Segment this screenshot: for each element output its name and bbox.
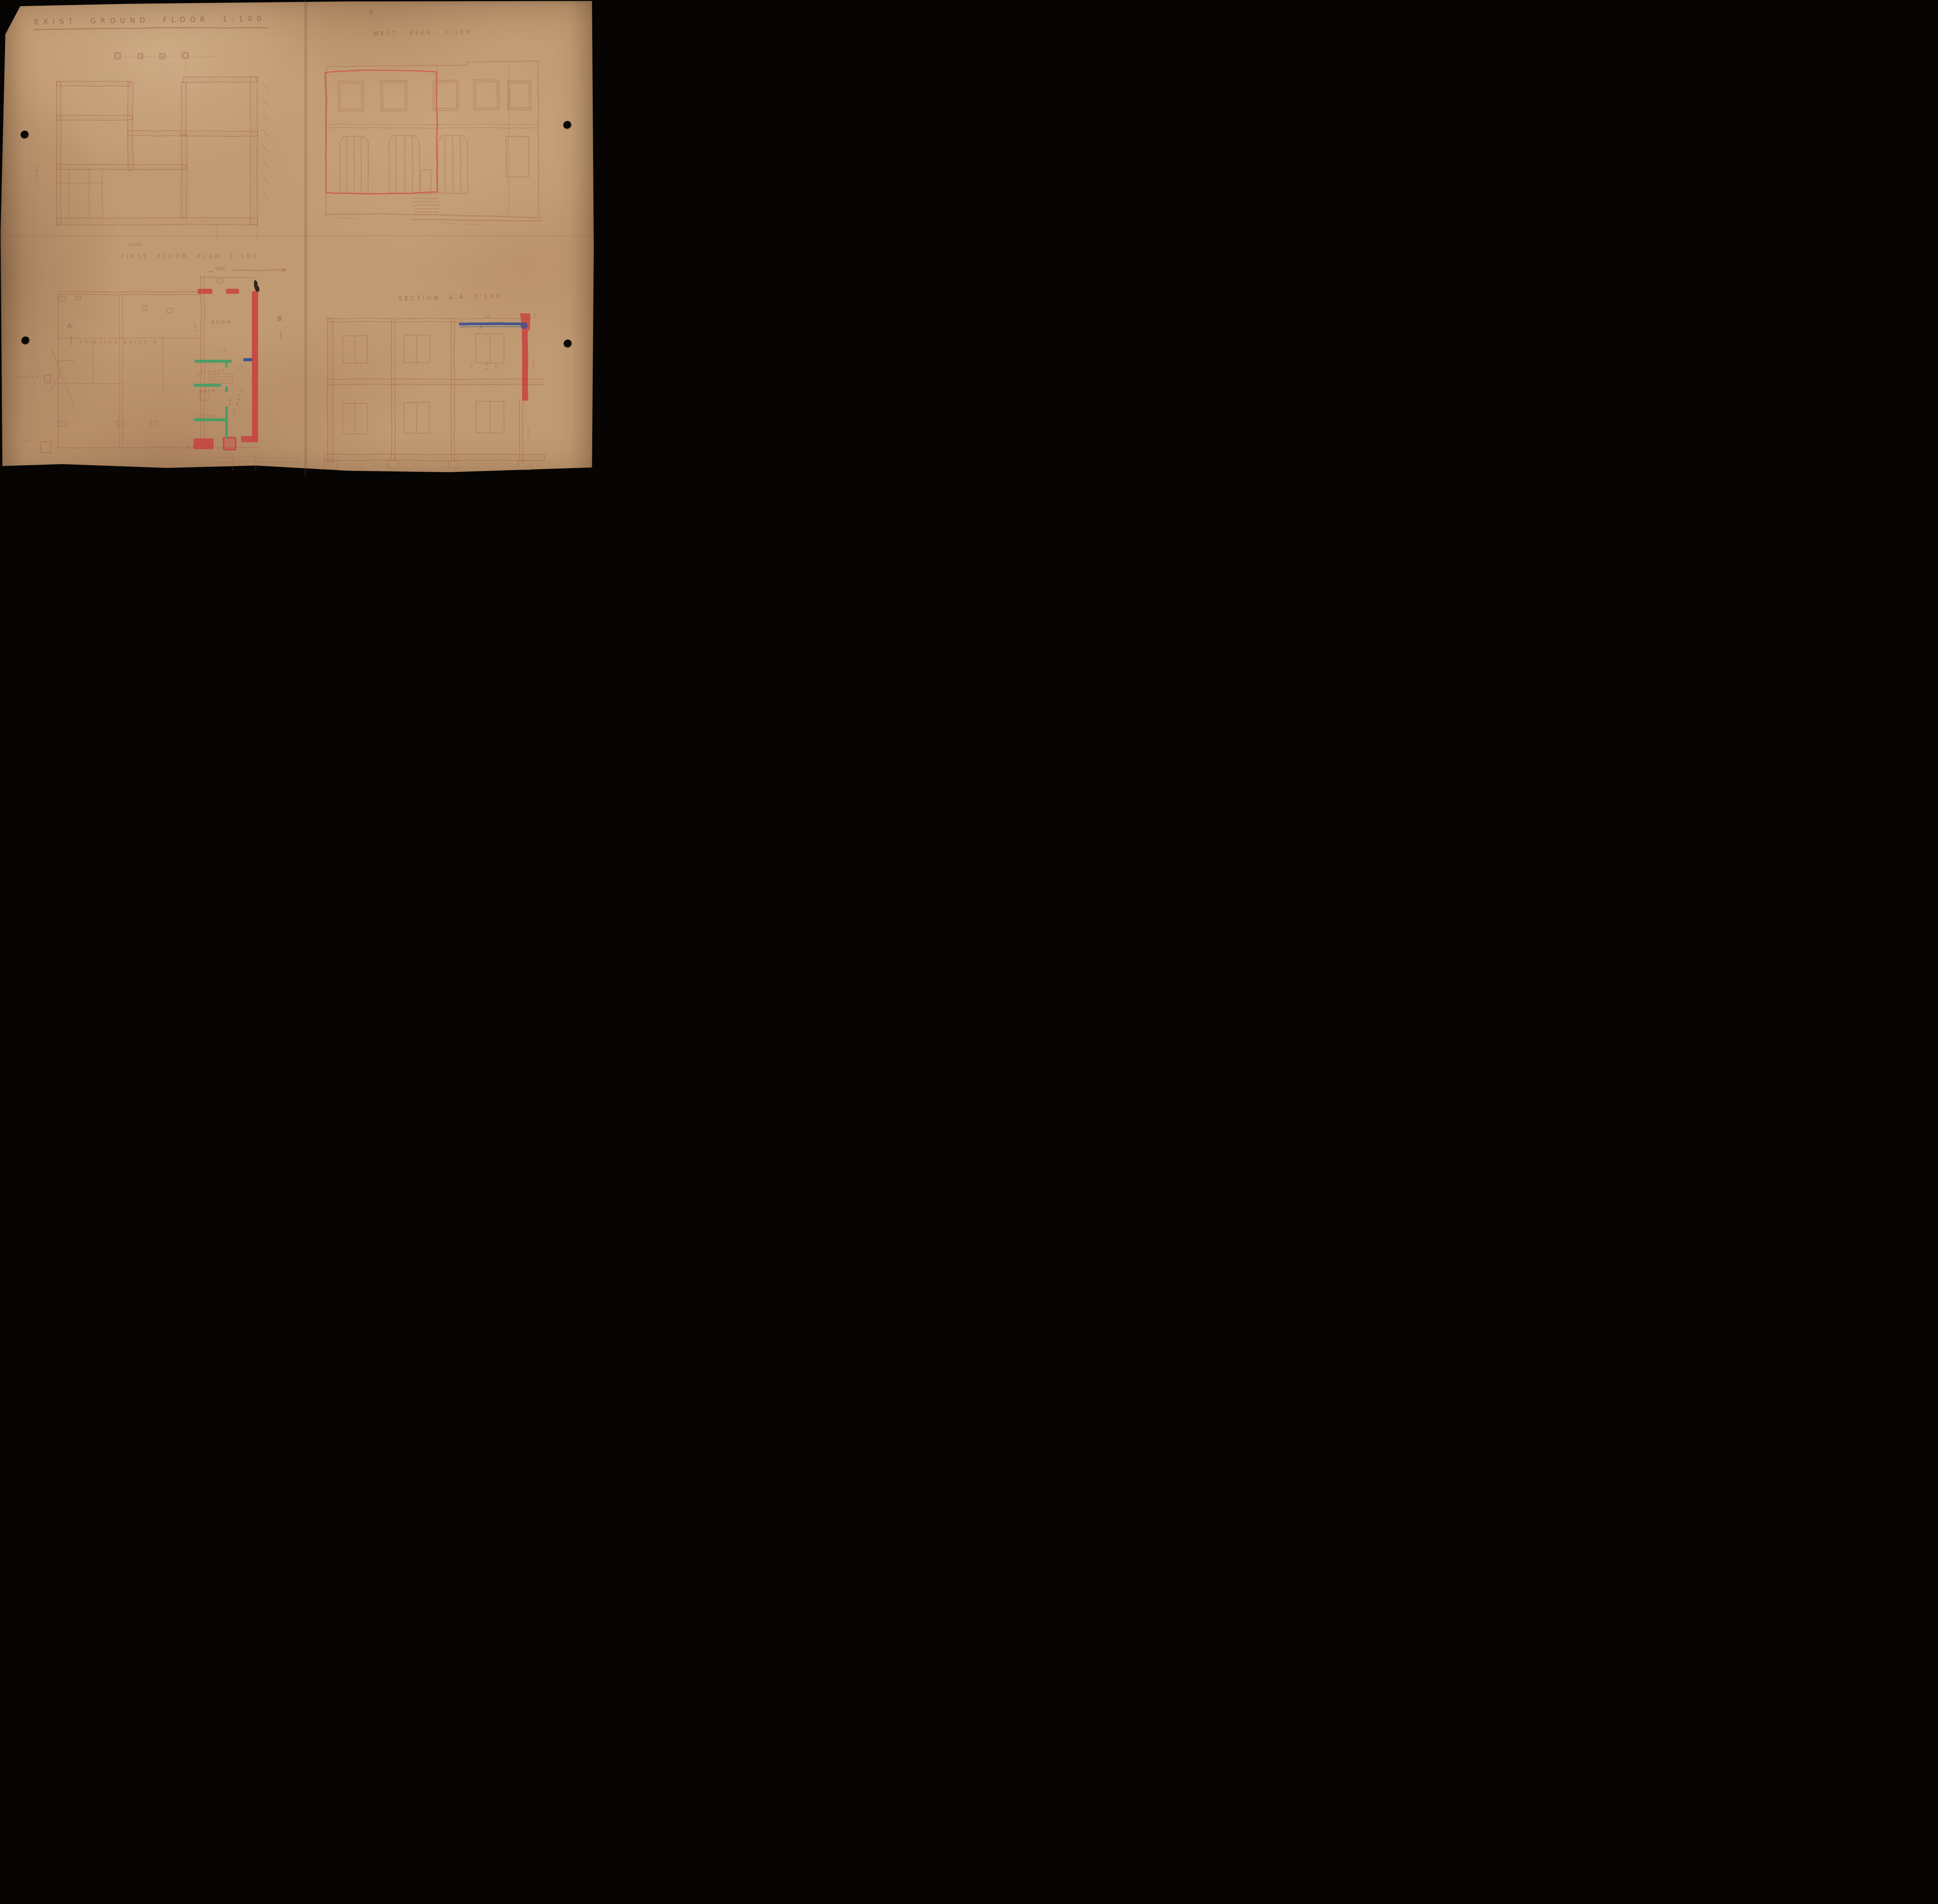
marker-a: A. — [67, 323, 74, 329]
red-wall-dash-2 — [226, 289, 239, 294]
section-bench-mark: T — [533, 314, 536, 319]
exist-mh-note: EXIST M.H — [17, 376, 39, 379]
red-outlined-block — [224, 438, 236, 450]
section-dim-40: 40 — [470, 363, 473, 367]
ground-floor-plan-drawing — [34, 28, 269, 240]
first-floor-plan-drawing — [41, 269, 298, 471]
dim-140: 1.40 — [233, 408, 236, 416]
section-blue-bearing — [521, 322, 528, 329]
lobby-label: LOBBY — [198, 413, 219, 419]
section-aa-drawing — [324, 313, 545, 470]
first-floor-top-dim: 450 — [216, 267, 226, 271]
first-floor-new-work — [193, 280, 259, 450]
room-label: ROOM — [211, 320, 232, 325]
mh-note: M.H — [22, 439, 29, 443]
west-elevation-title: WEST. ELEV. 1:100 — [373, 29, 472, 36]
dim-490: 4.90 — [229, 397, 232, 405]
section-red-wall — [522, 331, 528, 400]
first-floor-title: FIRST FLOOR PLAN 1:100 — [121, 254, 258, 259]
ground-floor-side-dim: 10.00 — [36, 166, 39, 179]
dim-270: 2.70 — [235, 366, 243, 369]
ink-blot — [254, 280, 259, 292]
drawing-linework — [0, 0, 595, 476]
section-dim-330: 3.30 — [486, 361, 489, 370]
section-dim-400: 4.00 — [527, 429, 530, 437]
dim-410: 4.10 — [218, 349, 226, 352]
west-elevation-drawing — [325, 9, 542, 225]
ma-note: M.A. — [188, 446, 197, 449]
section-blue-beam — [459, 323, 522, 325]
ground-floor-bottom-dim: 1400 — [128, 243, 141, 247]
marker-b: B. — [278, 316, 284, 322]
existing-building-label: EXISTING BUILD'G — [79, 340, 159, 344]
elevation-new-storey-red-outline — [326, 71, 437, 194]
dim-335: 3.35 — [194, 323, 197, 332]
section-dim-360: 3.60 — [532, 359, 535, 367]
section-dim-80: 80 — [485, 316, 490, 319]
section-dim-150: 1.50 — [495, 364, 498, 372]
red-wall-dash-1 — [198, 289, 212, 294]
blue-lintel-mark — [243, 358, 252, 361]
red-new-wall — [252, 291, 258, 442]
bath-label: BATH — [199, 389, 217, 393]
scanned-drawing-sheet: EXIST GROUND FLOOR 1:100 10.00 1400 WEST… — [0, 0, 595, 476]
registration-mark — [369, 9, 374, 16]
